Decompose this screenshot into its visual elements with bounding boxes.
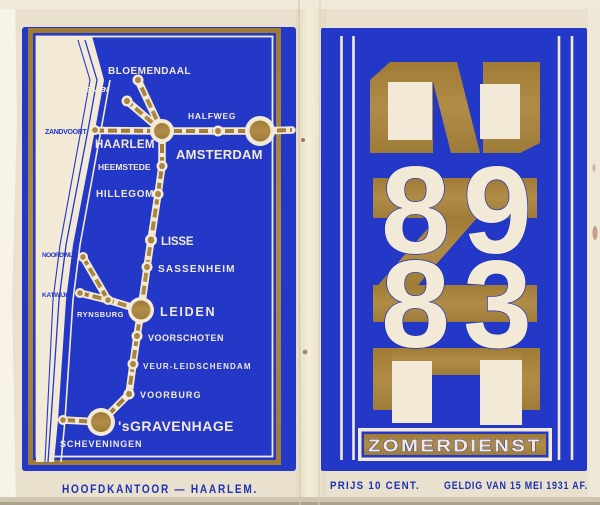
station-label: BLOEMENDAAL <box>108 66 192 77</box>
station-label: VOORSCHOTEN <box>148 333 225 343</box>
station-label: VOORBURG <box>140 390 202 400</box>
station-label: KATWIJK <box>42 292 71 299</box>
validity-caption: GELDIG VAN 15 MEI 1931 AF. <box>444 480 588 492</box>
stain-mark <box>592 164 595 172</box>
price-caption: PRIJS 10 CENT. <box>330 480 420 492</box>
letter-counter <box>388 82 432 140</box>
station-label: 'sGRAVENHAGE <box>118 418 235 434</box>
right-page-cover: 8 9 8 3 ZOMERDIENST PRIJS 10 CENT. GELDI… <box>321 28 588 492</box>
station-label: SCHEVENINGEN <box>60 439 143 449</box>
station-label: HAARLEM <box>95 139 156 151</box>
station-label: HILLEGOM <box>96 189 155 200</box>
station-label: VEUR-LEIDSCHENDAM <box>143 362 252 371</box>
banner-title: ZOMERDIENST <box>368 436 542 456</box>
station-label: NOORDWIJK <box>42 252 79 259</box>
station-label: SASSENHEIM <box>158 264 236 275</box>
right-paper-edge <box>588 0 600 505</box>
monogram-letter-n <box>370 62 540 153</box>
zomerdienst-banner: ZOMERDIENST <box>358 428 552 461</box>
head-office-caption: HOOFDKANTOOR — HAARLEM. <box>62 484 258 496</box>
top-paper-edge <box>0 0 600 9</box>
station-label: RYNSBURG <box>77 310 125 319</box>
scanned-booklet-cover: BLOEMENDAAL OVERVEEN HALFWEG HAARLEM AMS… <box>0 0 600 505</box>
stain-speck <box>303 350 308 355</box>
numeral-8-bottom: 8 <box>381 236 450 374</box>
cover-artwork: BLOEMENDAAL OVERVEEN HALFWEG HAARLEM AMS… <box>0 0 600 505</box>
left-page-route-map: BLOEMENDAAL OVERVEEN HALFWEG HAARLEM AMS… <box>22 27 296 496</box>
stain-speck <box>301 138 305 142</box>
stain-mark <box>593 226 598 240</box>
numeral-3-bottom: 3 <box>463 236 532 374</box>
letter-counter <box>480 84 520 139</box>
station-label: LEIDEN <box>160 305 216 319</box>
station-label: HEEMSTEDE <box>98 162 152 172</box>
station-label: LISSE <box>161 236 195 248</box>
station-label: ZANDVOORT <box>45 129 88 136</box>
station-label: OVERVEEN <box>78 87 110 94</box>
station-label: AMSTERDAM <box>176 147 264 162</box>
station-label: HALFWEG <box>188 111 237 121</box>
